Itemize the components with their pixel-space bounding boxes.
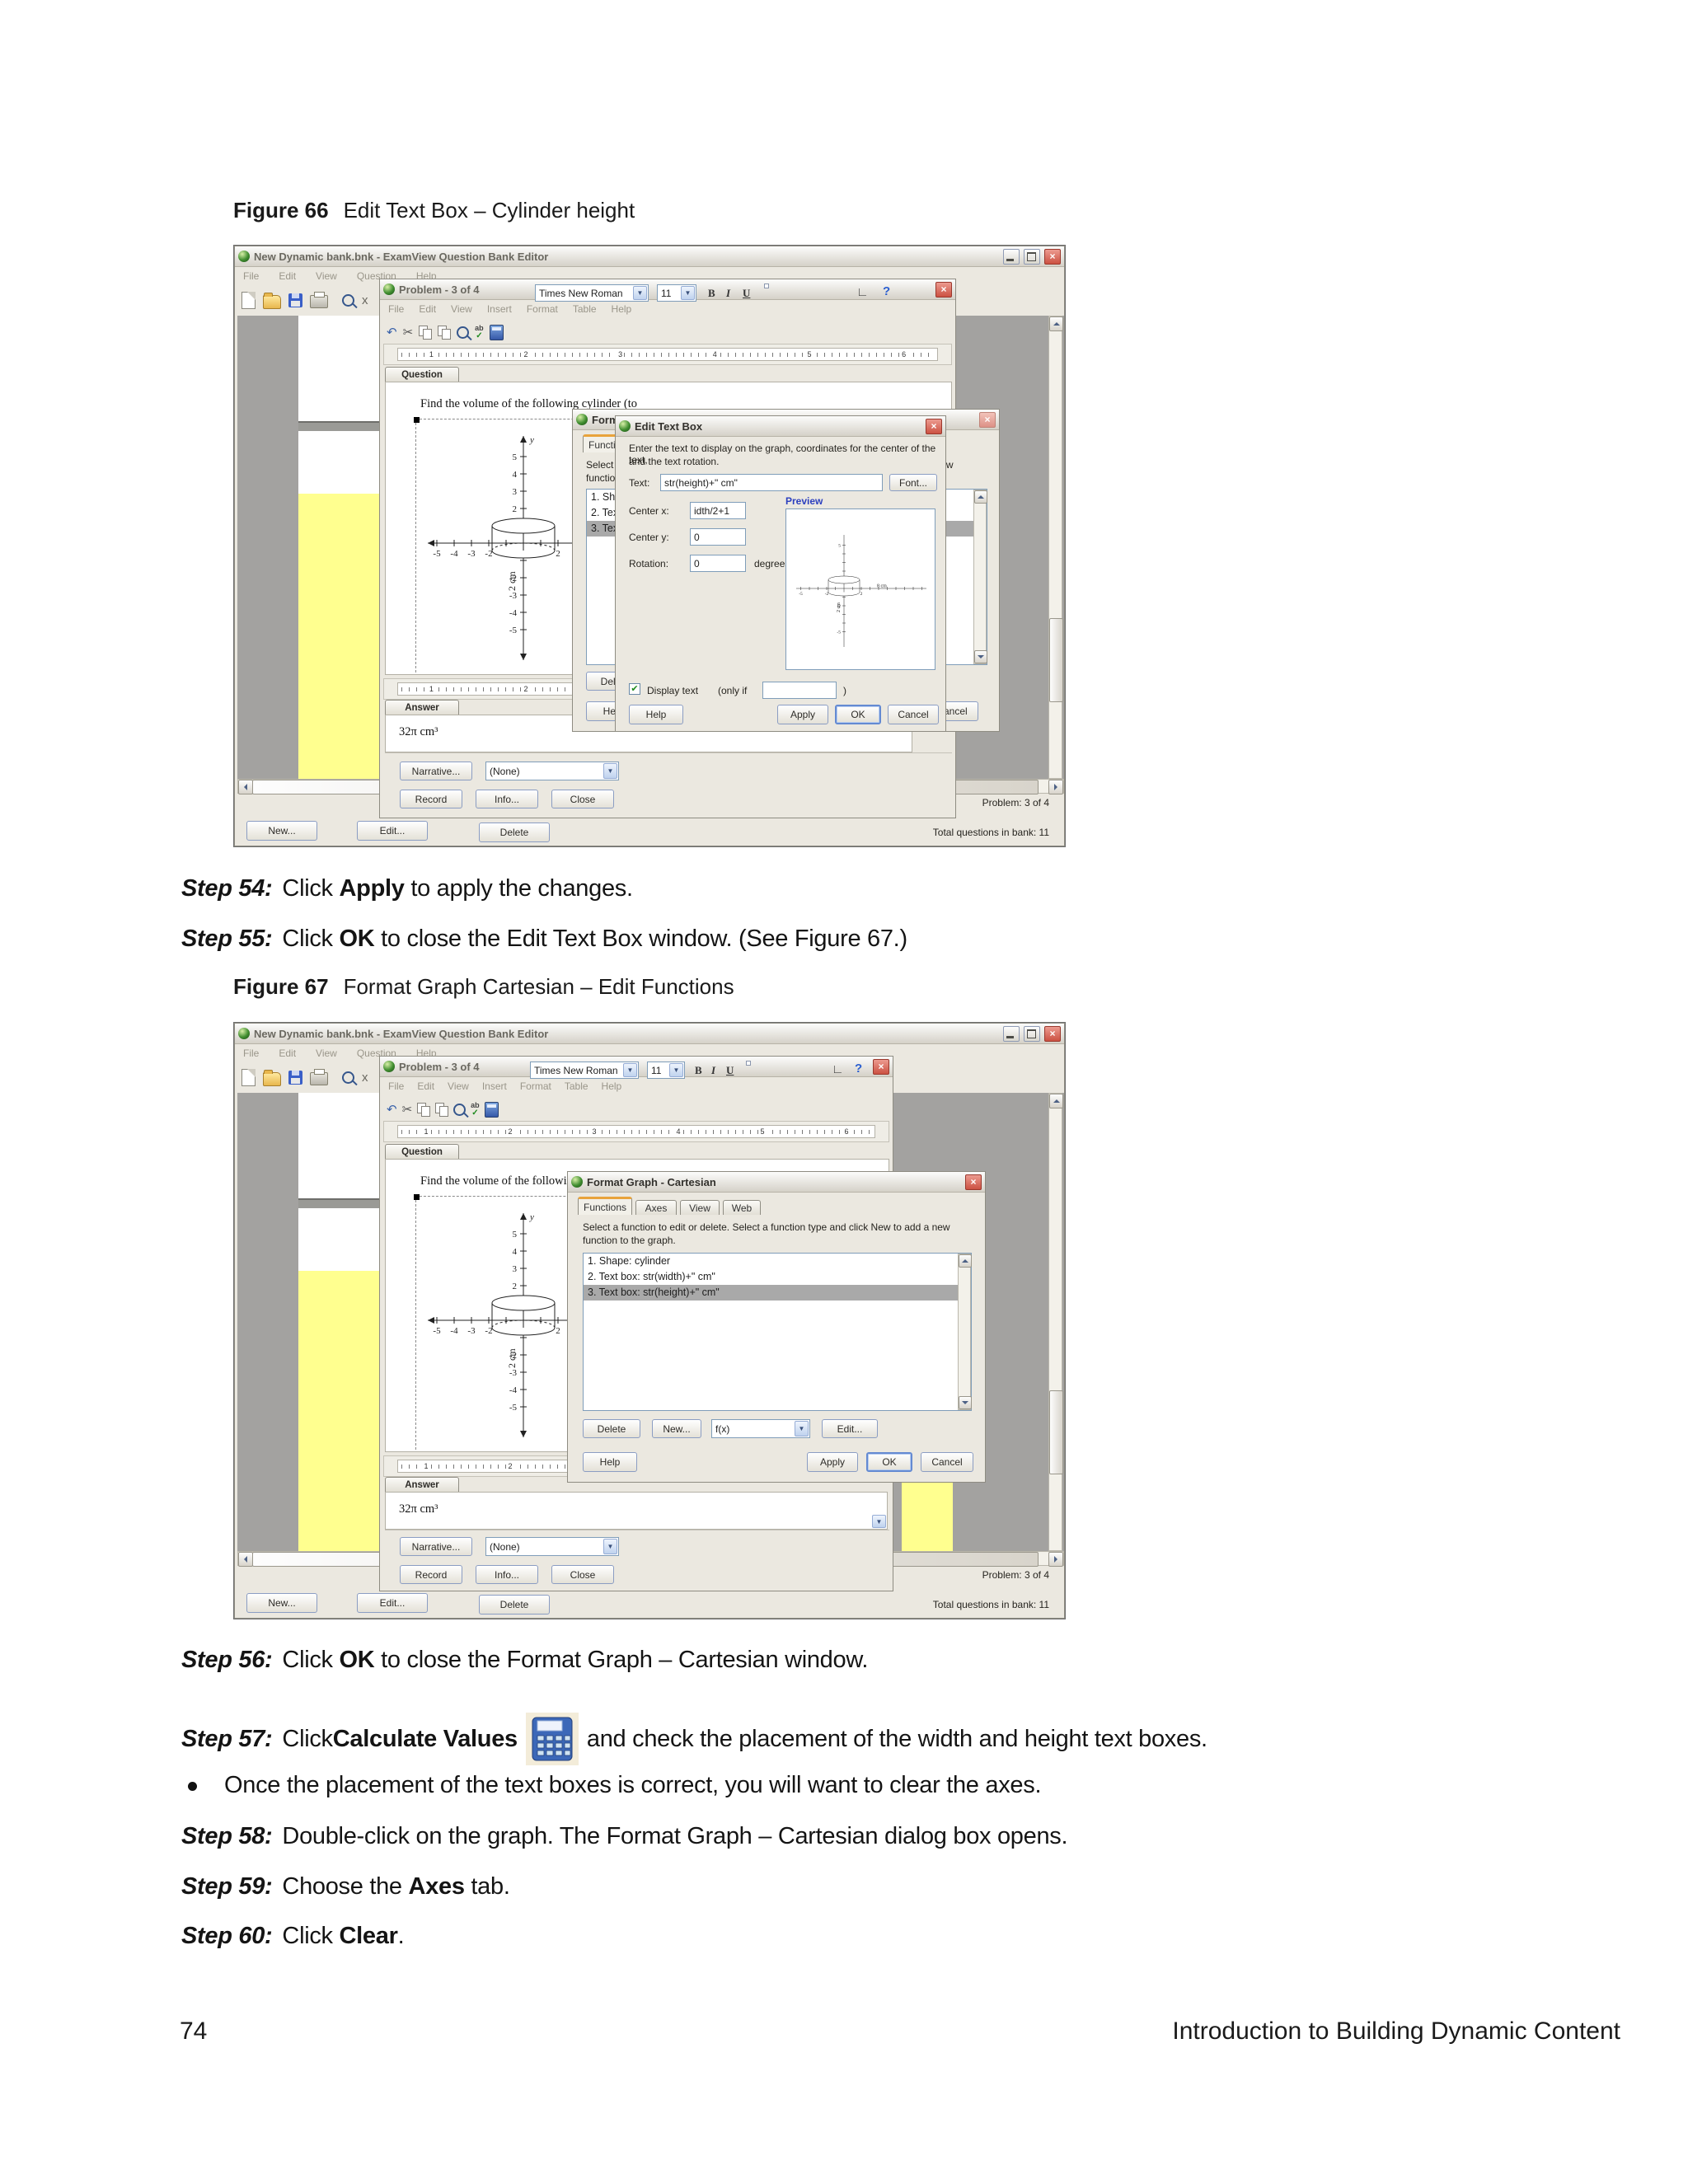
angle-icon[interactable]: ∟ [856,286,869,298]
align-center-button[interactable] [785,284,790,288]
format-title: Format Graph - Cartesian [587,1176,961,1188]
italic-button[interactable]: I [711,1064,715,1077]
pmenu-format[interactable]: Format [527,303,558,315]
svg-text:2 cm: 2 cm [506,1348,518,1368]
selected-question-highlight-right [902,1482,953,1551]
info-button[interactable]: Info... [476,790,538,808]
print-icon[interactable] [310,295,328,308]
status-problem: Problem: 3 of 4 [982,1569,1049,1581]
zoom-icon[interactable] [342,294,354,307]
angle-icon[interactable]: ∟ [832,1063,844,1076]
font-family-select[interactable]: Times New Roman▼ [530,1062,639,1079]
pmenu-view[interactable]: View [451,303,472,315]
svg-text:-4: -4 [450,549,458,559]
svg-text:-5: -5 [837,630,841,635]
svg-text:2: 2 [556,1326,560,1336]
info-button[interactable]: Info... [476,1565,538,1584]
align-center-button[interactable] [766,1061,771,1066]
etb-cancel-button[interactable]: Cancel [888,705,939,724]
format-ok-button[interactable]: OK [866,1452,912,1472]
copy-icon[interactable] [419,326,432,339]
svg-text:-2: -2 [485,1326,492,1336]
rotation-field[interactable]: 0 [690,555,746,572]
list-item[interactable]: 2. Text box: str(width)+" cm" [584,1269,971,1285]
display-text-label: Display text [647,685,698,696]
answer-tab[interactable]: Answer [385,700,459,715]
narrative-select[interactable]: (None)▼ [485,1537,619,1556]
paste-icon[interactable] [438,326,451,339]
pmenu-help[interactable]: Help [612,303,632,315]
minimize-button[interactable] [1003,249,1020,265]
help-icon[interactable]: ? [855,1062,862,1076]
svg-text:-5: -5 [509,626,518,635]
preview-label: Preview [785,495,823,507]
ruler-top: 123 456 [383,1121,889,1142]
svg-text:2: 2 [860,592,863,597]
svg-text:2 cm: 2 cm [506,571,518,591]
etb-close-icon[interactable]: × [926,419,942,434]
format-instruction-1: Select a function to edit or delete. Sel… [583,1221,950,1233]
format-icon [571,1176,583,1188]
restore-button[interactable] [1024,1026,1040,1042]
pmenu-edit[interactable]: Edit [419,303,436,315]
svg-text:3: 3 [513,487,518,497]
function-type-select[interactable]: f(x)▼ [711,1419,810,1438]
svg-text:-4: -4 [450,1326,458,1336]
bullet-icon [188,1782,197,1791]
svg-text:2: 2 [556,549,560,559]
save-icon[interactable] [288,1071,302,1085]
format-titlebar: Format Graph - Cartesian × [568,1172,985,1193]
editor-titlebar: New Dynamic bank.bnk - ExamView Question… [235,1024,1064,1044]
svg-text:-5: -5 [509,1403,518,1413]
svg-text:2: 2 [513,504,518,514]
font-dropdown-icon: ▼ [623,1063,637,1077]
svg-text:2: 2 [513,1282,518,1291]
open-icon[interactable] [263,295,281,309]
vertical-scrollbar[interactable] [1048,1093,1062,1551]
svg-text:-5: -5 [433,549,441,559]
tab-functions[interactable]: Functions [578,1197,632,1215]
calculate-values-icon[interactable] [490,325,504,340]
minimize-button[interactable] [1003,1026,1020,1042]
svg-text:-2: -2 [485,549,492,559]
calculate-values-icon [526,1713,579,1765]
problem-toolbar: ↶ ✂ ab✓ Times New Roman▼ 11▼ B I U ∟ ? [380,1095,893,1123]
spellcheck-icon[interactable]: ab✓ [475,325,484,340]
tab-view[interactable]: View [680,1200,720,1215]
pmenu-table[interactable]: Table [573,303,597,315]
problem-toolbar: ↶ ✂ ab✓ Times New Roman▼ 11▼ B I U ∟ ? [380,318,955,346]
bold-button[interactable]: B [708,287,715,300]
editor-title: New Dynamic bank.bnk - ExamView Question… [254,251,999,263]
align-justify-button[interactable] [805,1061,810,1066]
step-58: Step 58:Double-click on the graph. The F… [181,1823,1067,1850]
figure66-screenshot: New Dynamic bank.bnk - ExamView Question… [233,245,1066,847]
format-instruction-2: function to the graph. [583,1235,676,1246]
preview-box: -5 -2 2 5 -2 -5 8 cm 2 cm [785,509,935,670]
zoom-icon[interactable] [342,1071,354,1084]
pmenu-table[interactable]: Table [565,1080,588,1092]
degrees-label: degrees [754,558,790,569]
menu-view[interactable]: View [316,270,337,282]
svg-text:-3: -3 [509,1368,518,1378]
fit-icon[interactable]: x [362,1071,368,1084]
fit-icon[interactable]: x [362,294,368,307]
align-justify-button[interactable] [828,284,833,288]
svg-text:-5: -5 [799,592,803,597]
close-button[interactable]: Close [551,1565,614,1584]
delete-question-button[interactable]: Delete [479,1595,550,1615]
pmenu-edit[interactable]: Edit [417,1080,434,1092]
status-total: Total questions in bank: 11 [933,1599,1049,1610]
etb-help-button[interactable]: Help [629,705,683,724]
font-size-select[interactable]: 11▼ [657,284,696,302]
svg-text:-4: -4 [509,608,518,618]
svg-text:2 cm: 2 cm [837,602,842,612]
page-separator [298,1198,389,1208]
close-icon[interactable]: × [1044,249,1061,265]
narrative-button[interactable]: Narrative... [400,762,472,780]
font-dropdown-icon: ▼ [633,286,647,300]
menu-file[interactable]: File [243,1047,259,1059]
etb-instruction-2: and the text rotation. [629,456,719,467]
close-button[interactable]: Close [551,790,614,808]
copy-icon[interactable] [417,1103,430,1116]
align-right-button[interactable] [807,284,812,288]
step-59: Step 59:Choose the Axes tab. [181,1873,510,1900]
open-icon[interactable] [263,1072,281,1086]
new-document-icon[interactable] [241,292,256,309]
pmenu-view[interactable]: View [448,1080,469,1092]
svg-text:-3: -3 [467,1326,476,1336]
find-icon[interactable] [453,1104,466,1116]
etb-ok-button[interactable]: OK [835,705,881,724]
delete-function-button[interactable]: Delete [583,1419,640,1438]
record-button[interactable]: Record [400,790,462,808]
svg-text:4: 4 [513,470,518,480]
format-icon [576,414,588,425]
format-close-icon[interactable]: × [979,412,996,428]
font-family-select[interactable]: Times New Roman▼ [535,284,649,302]
figure67-label: Figure 67 [233,974,329,999]
figure66-label: Figure 66 [233,198,329,223]
pmenu-file[interactable]: File [388,303,404,315]
question-tab[interactable]: Question [385,1144,459,1159]
font-size-select[interactable]: 11▼ [647,1062,685,1079]
list-scrollbar[interactable] [973,490,987,664]
bold-button[interactable]: B [695,1064,702,1077]
spellcheck-icon[interactable]: ab✓ [471,1102,480,1118]
problem-close-icon[interactable]: × [873,1059,889,1075]
new-document-icon[interactable] [241,1069,256,1086]
status-problem: Problem: 3 of 4 [982,797,1049,808]
step-57: Step 57:Click Calculate Values and check… [181,1713,1207,1765]
pmenu-file[interactable]: File [388,1080,404,1092]
new-function-button[interactable]: New... [652,1419,701,1438]
footer-title: Introduction to Building Dynamic Content [1172,2018,1620,2046]
save-icon[interactable] [288,293,302,307]
narrative-panel: Narrative... (None)▼ Record Info... Clos… [385,752,952,817]
svg-text:4: 4 [513,1247,518,1257]
italic-button[interactable]: I [726,287,730,300]
edit-question-button[interactable]: Edit... [357,1593,428,1613]
svg-text:5: 5 [513,452,518,462]
problem-menubar: File Edit View Insert Format Table Help [380,1077,893,1095]
status-total: Total questions in bank: 11 [933,827,1049,838]
svg-text:y: y [529,1212,534,1222]
etb-titlebar: Edit Text Box × [616,416,945,437]
find-icon[interactable] [457,326,469,339]
underline-button[interactable]: U [726,1064,734,1077]
format-apply-button[interactable]: Apply [807,1452,858,1472]
answer-scroll-icon[interactable]: ▼ [872,1515,886,1528]
problem-icon [383,1061,395,1072]
bullet-item: Once the placement of the text boxes is … [224,1772,1041,1799]
figure67-caption: Figure 67Format Graph Cartesian – Edit F… [233,974,734,1000]
answer-text: 32π cm³ [399,725,438,739]
svg-text:y: y [529,435,534,445]
step-56: Step 56:Click OK to close the Format Gra… [181,1647,868,1674]
new-question-button[interactable]: New... [246,1593,317,1613]
only-if-field[interactable] [762,682,837,699]
step-60: Step 60:Click Clear. [181,1923,404,1950]
edit-function-button[interactable]: Edit... [822,1419,878,1438]
svg-text:5: 5 [838,543,841,548]
record-button[interactable]: Record [400,1565,462,1584]
edit-text-box-dialog: Edit Text Box × Enter the text to displa… [615,415,946,732]
new-question-button[interactable]: New... [246,821,317,841]
ruler-top: 123 456 [383,344,952,365]
svg-text:8 cm: 8 cm [877,583,887,588]
format-help-button[interactable]: Help [583,1452,637,1472]
pmenu-format[interactable]: Format [520,1080,551,1092]
problem-icon [383,284,395,295]
paren-label: ) [843,685,846,696]
answer-text: 32π cm³ [399,1502,438,1516]
preview-graph: -5 -2 2 5 -2 -5 8 cm 2 cm [790,527,931,653]
tab-web[interactable]: Web [723,1200,761,1215]
problem-close-icon[interactable]: × [935,282,952,298]
step-54: Step 54:Click Apply to apply the changes… [181,875,633,902]
svg-text:-5: -5 [433,1326,441,1336]
paste-icon[interactable] [435,1103,448,1116]
list-item[interactable]: 1. Shape: cylinder [584,1254,971,1269]
print-icon[interactable] [310,1072,328,1085]
editor-titlebar: New Dynamic bank.bnk - ExamView Question… [235,246,1064,267]
page-number: 74 [180,2018,207,2046]
selected-question-highlight [298,1271,389,1551]
vertical-scrollbar[interactable] [1048,316,1062,779]
menu-view[interactable]: View [316,1047,337,1059]
answer-tab[interactable]: Answer [385,1477,459,1492]
tab-axes[interactable]: Axes [635,1200,677,1215]
center-y-field[interactable]: 0 [690,528,746,546]
display-text-checkbox[interactable]: ✔ [629,683,640,695]
cut-icon[interactable]: ✂ [402,1104,413,1116]
problem-menubar: File Edit View Insert Format Table Help [380,300,955,318]
app-icon [238,251,250,262]
narrative-button[interactable]: Narrative... [400,1537,472,1556]
menu-edit[interactable]: Edit [279,1047,296,1059]
calculate-values-icon[interactable] [485,1102,499,1118]
format-cancel-button[interactable]: Cancel [921,1452,973,1472]
figure66-caption: Figure 66Edit Text Box – Cylinder height [233,198,635,223]
menu-edit[interactable]: Edit [279,270,296,282]
format-close-icon[interactable]: × [965,1174,982,1190]
center-x-field[interactable]: idth/2+1 [690,502,746,519]
edit-question-button[interactable]: Edit... [357,821,428,841]
center-y-label: Center y: [629,532,669,543]
size-dropdown-icon: ▼ [681,286,695,300]
pmenu-insert[interactable]: Insert [482,1080,507,1092]
help-icon[interactable]: ? [883,284,890,298]
undo-icon[interactable]: ↶ [387,326,397,339]
only-if-label: (only if [718,685,747,696]
close-icon[interactable]: × [1044,1026,1061,1042]
align-left-button[interactable] [764,284,769,288]
narrative-dropdown-icon: ▼ [603,1539,617,1554]
answer-area: 32π cm³ ▼ [385,1492,888,1530]
selected-question-highlight [298,494,389,779]
etb-icon [619,420,631,432]
menu-file[interactable]: File [243,270,259,282]
size-dropdown-icon: ▼ [669,1063,683,1077]
app-icon [238,1028,250,1039]
format-graph-dialog: Format Graph - Cartesian × Functions Axe… [567,1171,986,1483]
svg-text:-4: -4 [509,1385,518,1395]
pmenu-help[interactable]: Help [602,1080,622,1092]
step-55: Step 55:Click OK to close the Edit Text … [181,926,907,953]
underline-button[interactable]: U [743,287,750,300]
editor-title: New Dynamic bank.bnk - ExamView Question… [254,1028,999,1040]
svg-text:-3: -3 [467,549,476,559]
question-tab[interactable]: Question [385,367,459,382]
align-left-button[interactable] [746,1061,751,1066]
figure67-screenshot: New Dynamic bank.bnk - ExamView Question… [233,1022,1066,1619]
page-separator [298,421,389,431]
narrative-select[interactable]: (None)▼ [485,762,619,780]
text-field[interactable]: str(height)+" cm" [660,474,883,491]
narrative-dropdown-icon: ▼ [603,763,617,779]
svg-text:5: 5 [513,1230,518,1240]
undo-icon[interactable]: ↶ [387,1104,397,1116]
delete-question-button[interactable]: Delete [479,823,550,842]
font-button[interactable]: Font... [889,474,937,491]
svg-text:3: 3 [513,1264,518,1274]
narrative-panel: Narrative... (None)▼ Record Info... Clos… [385,1530,889,1591]
svg-text:-3: -3 [509,591,518,601]
restore-button[interactable] [1024,249,1040,265]
align-right-button[interactable] [785,1061,790,1066]
rotation-label: Rotation: [629,558,668,569]
etb-apply-button[interactable]: Apply [777,705,828,724]
center-x-label: Center x: [629,505,669,517]
etb-title: Edit Text Box [635,420,921,433]
text-label: Text: [629,477,649,489]
function-list: 1. Shape: cylinder 2. Text box: str(widt… [583,1253,972,1411]
pmenu-insert[interactable]: Insert [487,303,512,315]
cut-icon[interactable]: ✂ [403,326,414,339]
list-scrollbar[interactable] [958,1254,971,1410]
list-item-selected[interactable]: 3. Text box: str(height)+" cm" [584,1285,971,1301]
